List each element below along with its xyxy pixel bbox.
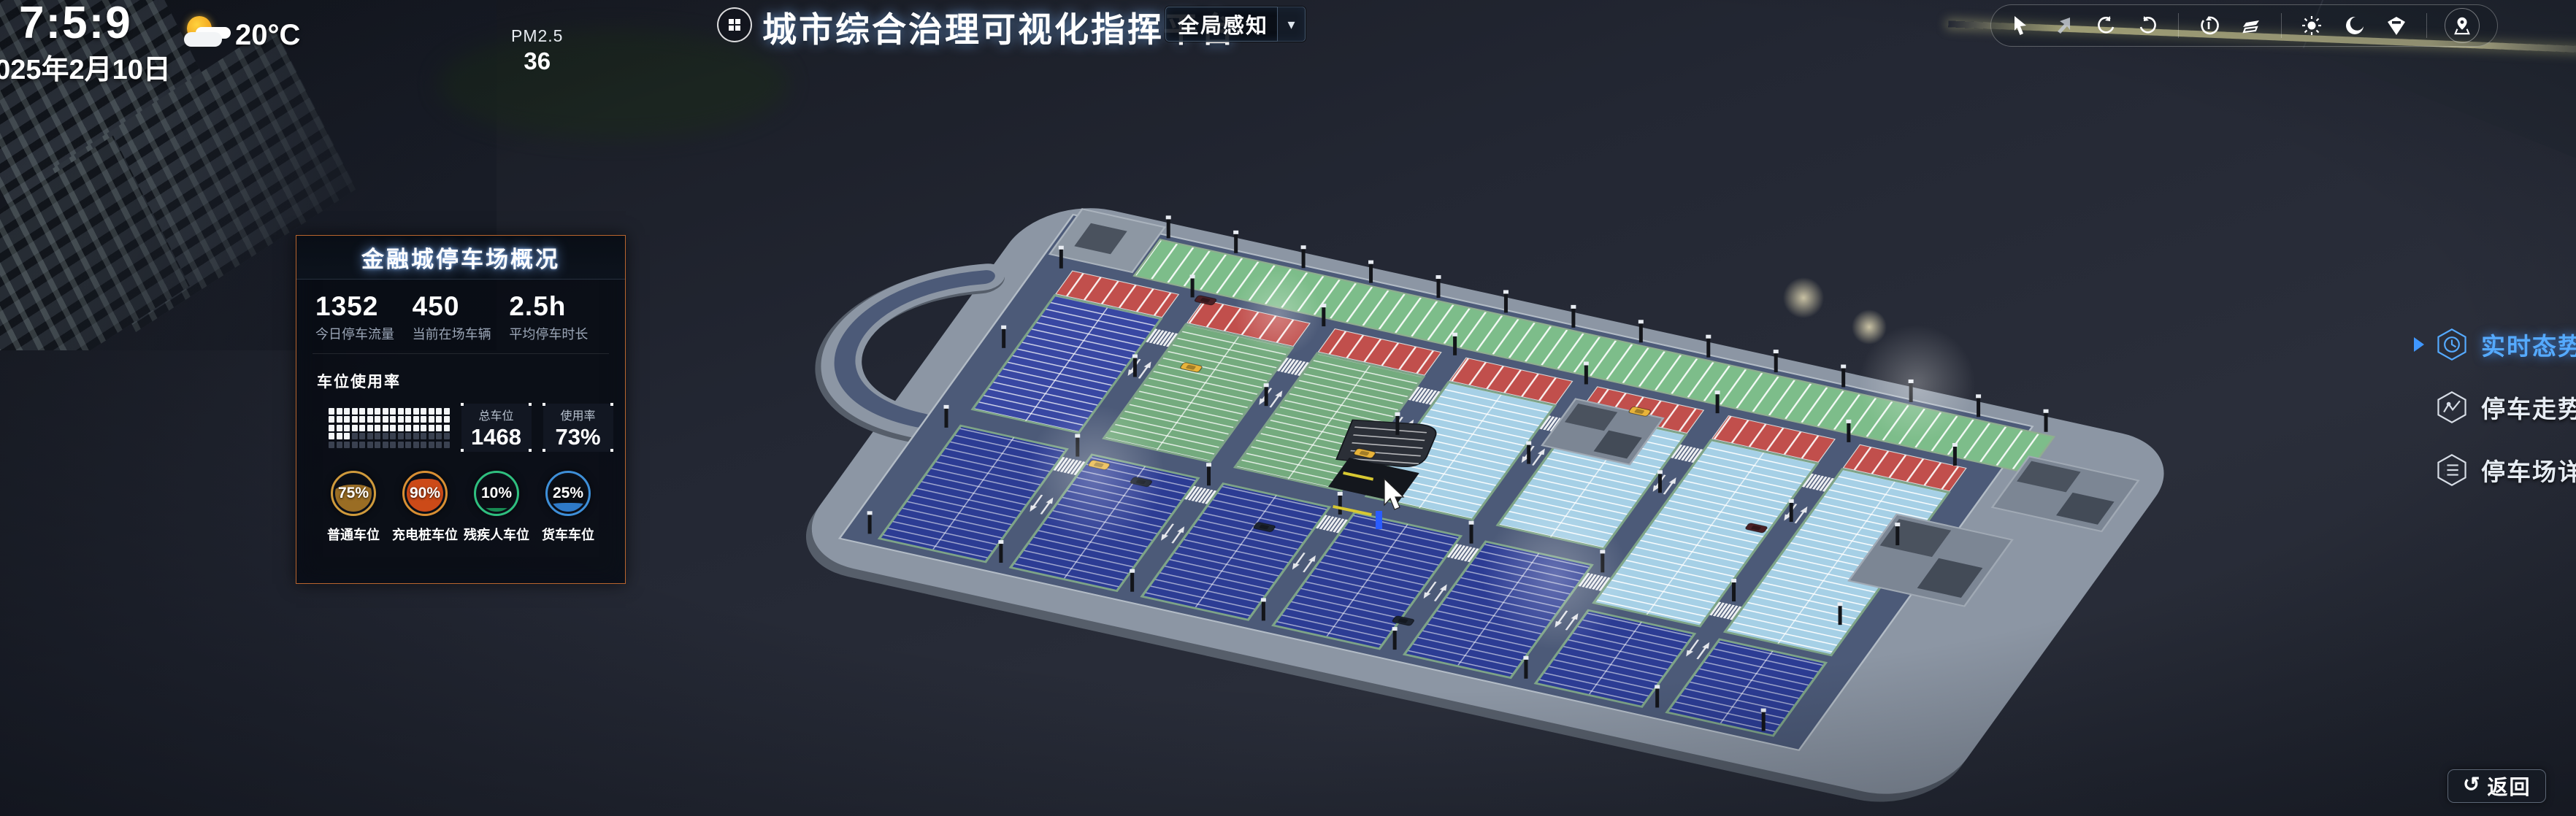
gauge-truck-spaces: 25% 货车车位 xyxy=(533,471,603,544)
mode-label: 全局感知 xyxy=(1178,9,1268,39)
gauge-disabled-spaces: 10% 残疾人车位 xyxy=(461,471,532,544)
global-perception-dropdown[interactable]: 全局感知 ▾ xyxy=(1165,7,1306,42)
list-hex-icon xyxy=(2434,453,2469,488)
reset-view-icon[interactable] xyxy=(2196,13,2221,38)
usage-waffle-chart xyxy=(329,408,450,448)
day-mode-icon[interactable] xyxy=(2299,13,2324,38)
layers-icon[interactable] xyxy=(2239,13,2263,38)
rotate-ccw-icon[interactable] xyxy=(2093,13,2118,38)
gauge-regular-spaces: 75% 普通车位 xyxy=(318,471,388,544)
usage-row: 总车位 1468 使用率 73% xyxy=(329,404,625,452)
back-button[interactable]: ↺ 返回 xyxy=(2447,769,2546,803)
panel-title: 金融城停车场概况 xyxy=(361,241,560,274)
pm25-value: 36 xyxy=(511,47,563,75)
clock-hex-icon xyxy=(2434,327,2469,362)
parking-overview-panel: 金融城停车场概况 1352 今日停车流量 450 当前在场车辆 2.5h 平均停… xyxy=(296,235,626,584)
rotate-cw-icon[interactable] xyxy=(2136,13,2161,38)
active-pointer-icon xyxy=(2414,337,2424,352)
stat-avg-duration: 2.5h 平均停车时长 xyxy=(509,291,606,343)
usage-rate-box: 使用率 73% xyxy=(543,404,613,452)
stat-current-vehicles: 450 当前在场车辆 xyxy=(413,291,510,343)
sun-cloud-icon xyxy=(181,16,228,54)
pan-cursor-icon[interactable] xyxy=(2051,13,2076,38)
stats-row: 1352 今日停车流量 450 当前在场车辆 2.5h 平均停车时长 xyxy=(296,280,625,343)
menu-item-parking-trend[interactable]: 停车走势 xyxy=(2414,388,2576,426)
app-grid-icon xyxy=(717,7,752,42)
menu-item-parking-detail[interactable]: 停车场详情 xyxy=(2414,451,2576,489)
gauge-charging-spaces: 90% 充电桩车位 xyxy=(390,471,460,544)
usage-section-title: 车位使用率 xyxy=(317,370,625,392)
map-toolbar xyxy=(1990,4,2498,47)
chevron-down-icon[interactable]: ▾ xyxy=(1277,7,1305,42)
right-nav-menu: 实时态势 停车走势 停车场详情 xyxy=(2414,326,2576,514)
clock-date: 2025年2月10日 xyxy=(0,47,171,87)
temperature: 20°C xyxy=(235,19,300,52)
back-arrow-icon: ↺ xyxy=(2463,774,2480,795)
select-cursor-icon[interactable] xyxy=(2009,13,2033,38)
menu-item-realtime[interactable]: 实时态势 xyxy=(2414,326,2576,363)
total-spaces-box: 总车位 1468 xyxy=(461,404,532,452)
pm25-widget: PM2.5 36 xyxy=(511,26,563,75)
clock-time: 7:5:9 xyxy=(19,0,132,49)
night-mode-icon[interactable] xyxy=(2342,13,2366,38)
gauges-row: 75% 普通车位 90% 充电桩车位 10% 残疾人车位 25% 货车车位 xyxy=(296,452,625,544)
pm25-label: PM2.5 xyxy=(511,26,563,46)
marker-pin-icon[interactable] xyxy=(2384,13,2409,38)
locate-icon[interactable] xyxy=(2445,8,2480,43)
stat-today-flow: 1352 今日停车流量 xyxy=(315,291,413,343)
weather-widget: 20°C PM2.5 36 xyxy=(181,15,400,66)
panel-header: 金融城停车场概况 xyxy=(296,236,625,280)
trend-hex-icon xyxy=(2434,390,2469,425)
